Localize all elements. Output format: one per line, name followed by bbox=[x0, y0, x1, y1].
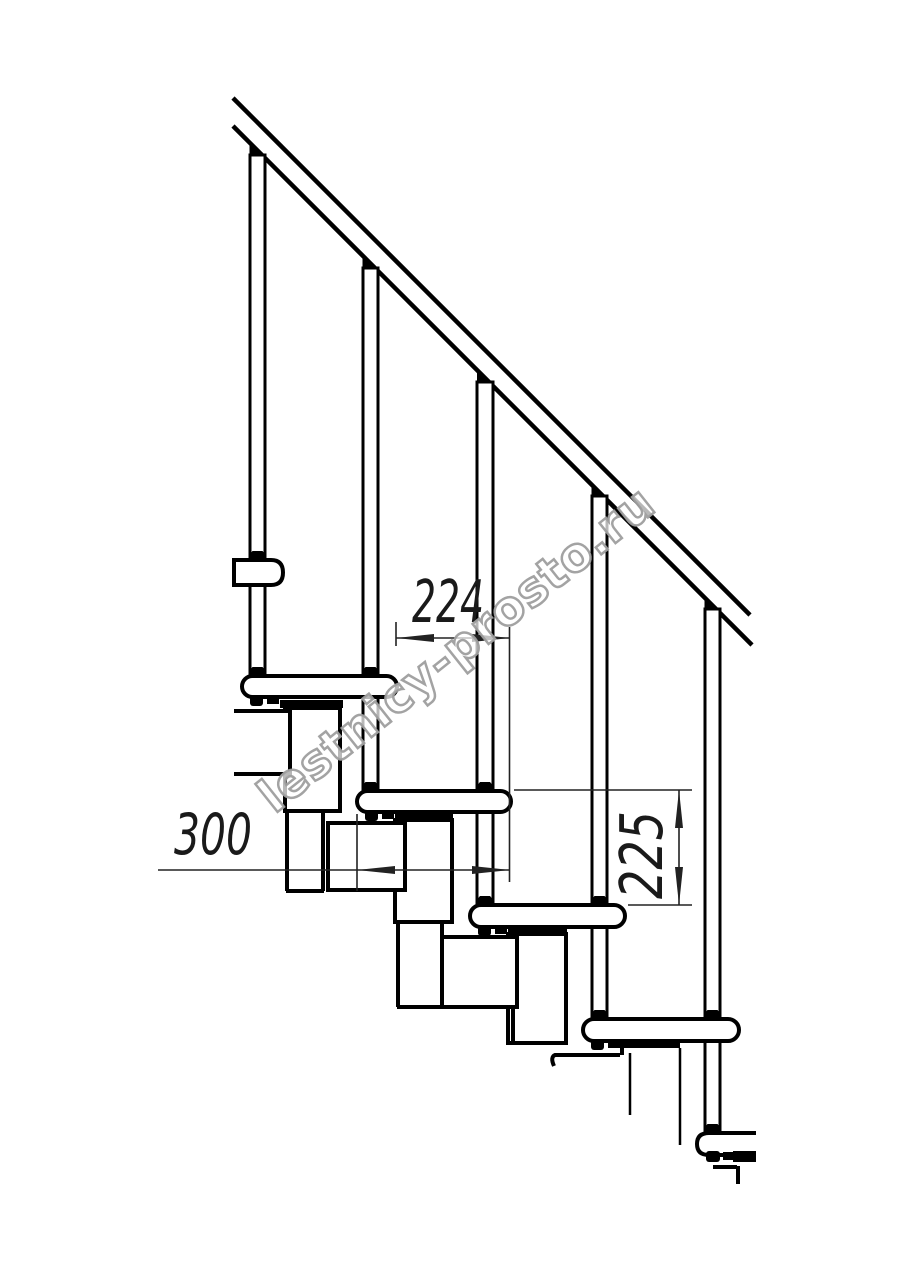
staircase-technical-drawing: 224 300 225 bbox=[0, 0, 914, 1280]
dimension-label-left: 300 bbox=[174, 802, 252, 868]
tread-edge-view bbox=[234, 560, 283, 585]
treads bbox=[234, 560, 756, 1155]
drawing-canvas: 224 300 225 lestnicy-prosto.ru bbox=[0, 0, 914, 1280]
dimension-label-right: 225 bbox=[607, 811, 676, 899]
dimension-label-top: 224 bbox=[412, 567, 484, 636]
